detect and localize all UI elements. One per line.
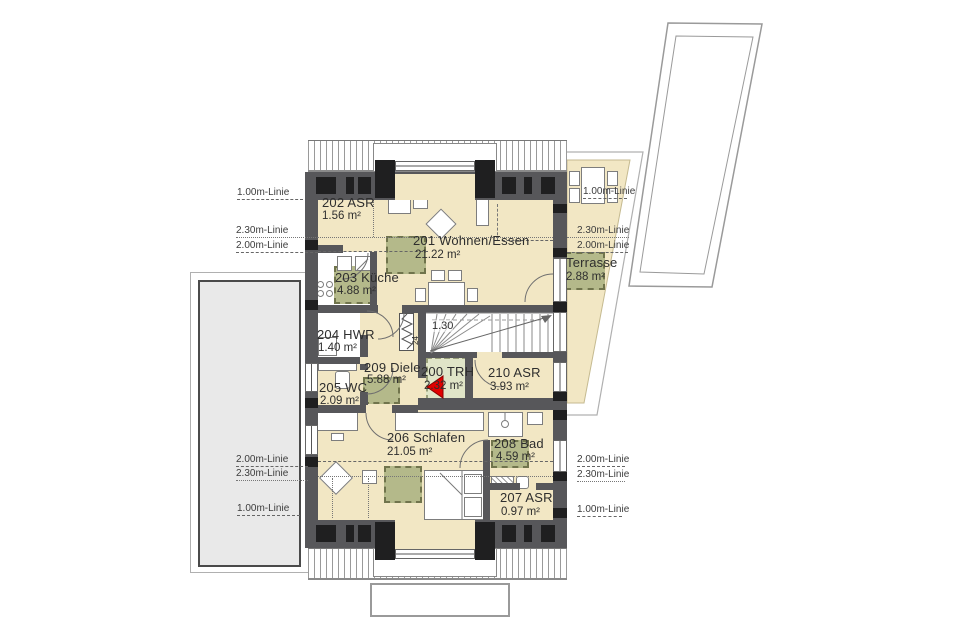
chimney	[399, 313, 414, 351]
dormer-window-bottom	[395, 549, 475, 559]
stove-burner	[326, 281, 333, 288]
desk	[312, 412, 358, 431]
dining-chair	[415, 288, 426, 302]
wall-bad-207a	[483, 483, 520, 490]
dormer-post	[475, 160, 495, 198]
staircase-floor	[426, 312, 553, 352]
wall-post	[553, 302, 567, 312]
room-label-208: 208 Bad	[494, 437, 544, 450]
desk-chair	[331, 433, 344, 441]
neighbor-building	[198, 280, 301, 567]
room-area-206: 21.05 m²	[387, 447, 432, 459]
dormer-post	[375, 160, 395, 198]
height-label: 2.00m-Linie	[236, 241, 288, 251]
knee-wall-post	[541, 177, 555, 194]
height-label: 1.00m-Linie	[237, 188, 289, 198]
room-label-203: 203 Küche	[335, 271, 399, 284]
room-label-210: 210 ASR	[488, 366, 541, 379]
room-area-202: 1.56 m²	[322, 211, 361, 223]
room-label-204: 204 HWR	[317, 328, 375, 341]
leader-line	[236, 252, 318, 253]
leader-line	[567, 237, 629, 238]
room-label-202: 202 ASR	[322, 196, 375, 209]
wall-h2	[418, 398, 567, 410]
kitchen-counter	[355, 256, 371, 271]
room-label-206: 206 Schlafen	[387, 431, 465, 444]
room-area-204: 1.40 m²	[318, 343, 357, 355]
knee-wall-post	[316, 177, 336, 194]
wall-h3b	[392, 405, 418, 413]
terrace-chair	[607, 171, 618, 186]
leader-line	[237, 515, 300, 516]
height-label: 2.30m-Linie	[236, 226, 288, 236]
room-label-201: 201 Wohnen/Essen	[413, 234, 529, 247]
wall-post	[553, 392, 567, 401]
height-line-230-bottom	[318, 476, 553, 477]
wall-stair-bottom-b	[502, 352, 553, 358]
knee-wall-post	[524, 177, 532, 194]
pillow	[464, 474, 482, 494]
room-area-209: 5.88 m²	[367, 375, 406, 387]
dormer-post	[375, 522, 395, 560]
height-label: 2.00m-Linie	[236, 455, 288, 465]
stove-burner	[317, 290, 324, 297]
knee-wall-post	[502, 177, 516, 194]
height-label: 2.00m-Linie	[577, 455, 629, 465]
wall-post	[553, 472, 567, 481]
knee-wall-post	[502, 525, 516, 542]
leader-line	[577, 481, 625, 482]
terrace-door	[553, 258, 567, 302]
wardrobe	[395, 412, 484, 431]
room-label-209: 209 Diele	[364, 361, 421, 374]
leader-line	[577, 466, 625, 467]
dining-chair	[448, 270, 462, 281]
height-line-v1	[332, 478, 333, 518]
room-area-210: 3.93 m²	[490, 382, 529, 394]
neighbor-roof-inner	[640, 36, 753, 274]
room-area-201: 21.22 m²	[415, 250, 460, 262]
room-area-208: 4.59 m²	[496, 452, 535, 464]
knee-wall-post	[316, 525, 336, 542]
dormer-window-top	[395, 161, 475, 171]
leader-line	[237, 199, 303, 200]
height-label: 1.00m-Linie	[583, 187, 635, 197]
leader-line	[236, 237, 318, 238]
room-area-203: 4.88 m²	[337, 286, 376, 298]
dormer-post	[475, 522, 495, 560]
dormer-top-recess	[395, 174, 475, 200]
leader-line	[236, 480, 308, 481]
terrace-chair	[569, 188, 580, 203]
wall-post	[305, 398, 318, 408]
knee-wall-post	[541, 525, 555, 542]
wall-post	[553, 508, 567, 518]
dining-chair	[467, 288, 478, 302]
leader-line	[236, 466, 308, 467]
window-stair	[553, 312, 567, 352]
dormer-bottom-recess	[395, 520, 475, 549]
wall-bad-207b	[536, 483, 567, 490]
stove-burner	[326, 290, 333, 297]
knee-wall-post	[346, 525, 354, 542]
leader-line	[577, 516, 622, 517]
floor-plan: 1.00m-Linie 2.30m-Linie 2.00m-Linie 2.00…	[0, 0, 960, 640]
shower-drain-icon	[501, 420, 509, 428]
room-label-205: 205 WC	[319, 381, 367, 394]
room-label-terrasse: Terrasse	[566, 256, 617, 269]
knee-wall-post	[358, 525, 371, 542]
window-210	[553, 362, 567, 392]
wall-post	[305, 300, 318, 310]
stove-burner	[317, 281, 324, 288]
window-schlafen	[305, 425, 318, 455]
side-table	[362, 470, 377, 484]
room-area-200: 2.32 m²	[424, 381, 463, 393]
height-label: 1.00m-Linie	[237, 504, 289, 514]
height-line-200-top	[318, 251, 428, 252]
wall-post	[553, 410, 567, 420]
terrace-chair	[569, 171, 580, 186]
room-area-207: 0.97 m²	[501, 507, 540, 519]
room-area-terrasse: 2.88 m²	[566, 272, 605, 284]
knee-wall-post	[358, 177, 371, 194]
height-label: 2.30m-Linie	[577, 226, 629, 236]
wall-schlafen-bad	[483, 440, 490, 520]
leader-line	[583, 198, 627, 199]
wall-post	[553, 248, 567, 257]
knee-wall-post	[346, 177, 354, 194]
height-line-v2	[368, 478, 369, 518]
height-label: 2.30m-Linie	[577, 470, 629, 480]
stair-run-width: 1.30	[432, 320, 453, 332]
wall-h1b	[402, 305, 567, 313]
wall-post	[553, 204, 567, 213]
window-bad	[553, 440, 567, 472]
room-area-205: 2.09 m²	[320, 396, 359, 408]
room-label-200: 200 TRH	[421, 365, 474, 378]
kitchen-sink	[337, 256, 352, 271]
knee-wall-post	[524, 525, 532, 542]
height-label: 2.00m-Linie	[577, 241, 629, 251]
lower-floor-outline	[370, 583, 510, 617]
leader-line	[567, 252, 628, 253]
stair-tread-depth: 24	[411, 336, 420, 345]
bath-cabinet	[527, 412, 543, 425]
pillow	[464, 497, 482, 517]
roof-window-marker-schlafen	[384, 466, 422, 503]
height-label: 1.00m-Linie	[577, 505, 629, 515]
room-label-207: 207 ASR	[500, 491, 553, 504]
window-wc	[305, 363, 318, 392]
dining-chair	[431, 270, 445, 281]
neighbor-roof-outline	[629, 23, 762, 287]
height-label: 2.30m-Linie	[236, 469, 288, 479]
wall-post	[305, 240, 318, 250]
